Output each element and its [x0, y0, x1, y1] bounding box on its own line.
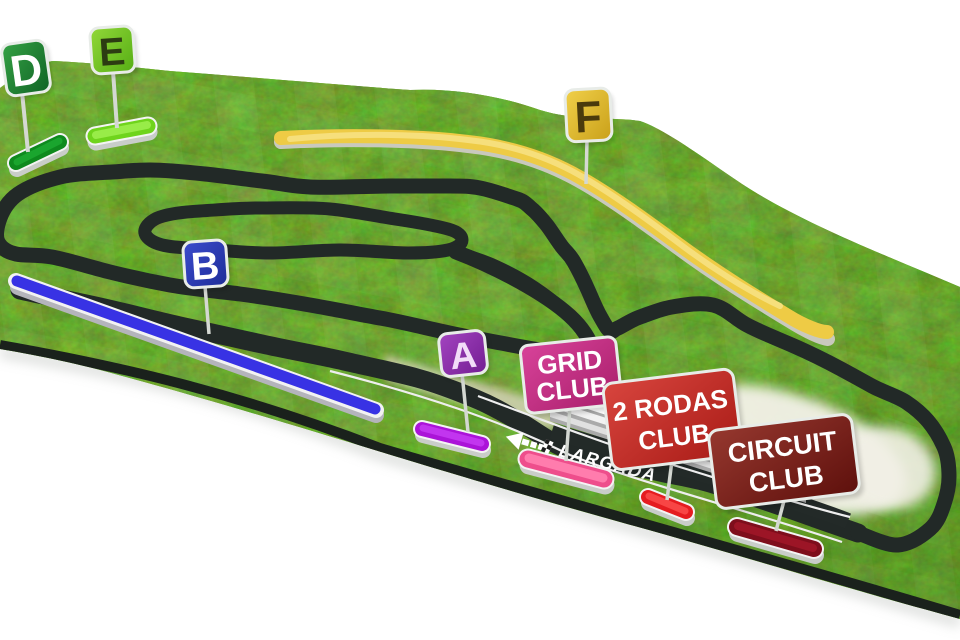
svg-text:D: D	[7, 44, 45, 97]
svg-text:E: E	[98, 30, 127, 75]
svg-text:B: B	[190, 244, 221, 289]
svg-text:A: A	[448, 334, 479, 378]
svg-text:F: F	[573, 92, 602, 142]
